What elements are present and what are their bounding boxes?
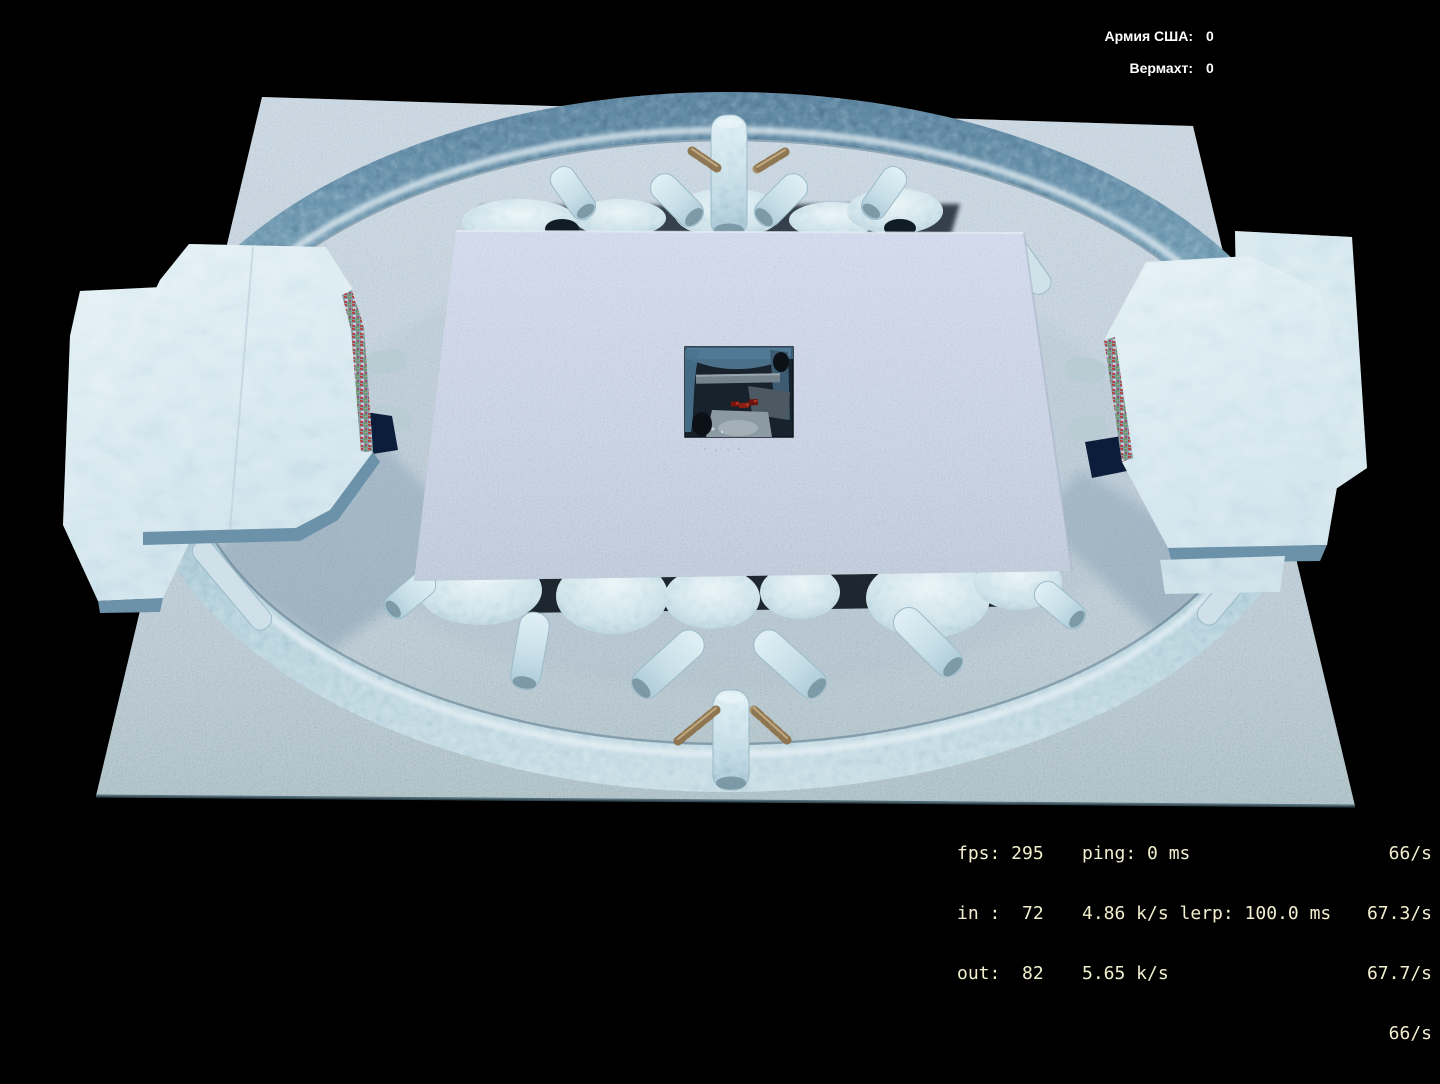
ice-pillar-south xyxy=(713,690,749,790)
netgraph-rate: 66/s xyxy=(1367,844,1432,864)
team2-label: Вермахт: xyxy=(990,60,1193,76)
team1-label: Армия США: xyxy=(990,28,1193,44)
netgraph-fps-line: fps: 295 xyxy=(957,844,1044,864)
lower-step-slab xyxy=(1160,556,1285,594)
netgraph-in-line: in : 72 xyxy=(957,904,1044,924)
netgraph-rate: 66/s xyxy=(1367,1024,1432,1044)
score-row-team1: Армия США: 0 xyxy=(990,28,1218,44)
overhead-map xyxy=(0,0,1440,900)
map-viewport[interactable] xyxy=(0,0,1440,900)
game-screen: Армия США: 0 Вермахт: 0 fps: 295 in : 72… xyxy=(0,0,1440,900)
netgraph-detail-column: ping: 0 ms 4.86 k/s lerp: 100.0 ms 5.65 … xyxy=(1082,804,1331,1024)
score-row-team2: Вермахт: 0 xyxy=(990,60,1218,76)
netgraph-rate: 67.7/s xyxy=(1367,964,1432,984)
team1-score: 0 xyxy=(1206,28,1218,44)
team2-score: 0 xyxy=(1206,60,1218,76)
netgraph-out-line: out: 82 xyxy=(957,964,1044,984)
netgraph-stats-column: fps: 295 in : 72 out: 82 xyxy=(957,804,1044,1024)
central-pit xyxy=(685,347,793,451)
netgraph-rate: 67.3/s xyxy=(1367,904,1432,924)
netgraph-out-rate: 5.65 k/s xyxy=(1082,964,1331,984)
netgraph-ping: ping: 0 ms xyxy=(1082,844,1331,864)
netgraph-rates-column: 66/s 67.3/s 67.7/s 66/s xyxy=(1367,804,1432,1084)
pit-beam xyxy=(696,373,780,383)
netgraph-in-rate: 4.86 k/s lerp: 100.0 ms xyxy=(1082,904,1331,924)
ice-pillar-north xyxy=(711,115,747,237)
